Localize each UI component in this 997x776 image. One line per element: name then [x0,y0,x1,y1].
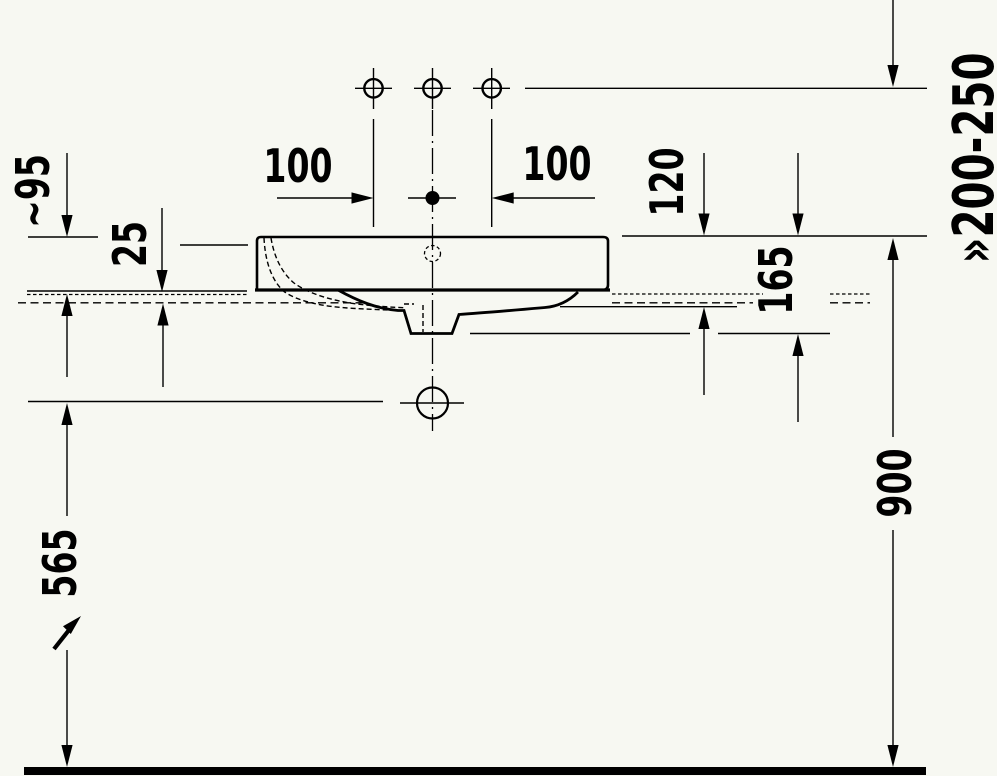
technical-drawing-canvas: 100 100 120 165 ~95 25 565 900 »200-250 [0,0,997,776]
dimension-labels: 100 100 120 165 ~95 25 565 900 »200-250 [8,52,997,597]
washbasin-hidden-lines [264,238,423,332]
label-200-250: »200-250 [941,52,997,263]
label-120: 120 [642,147,695,216]
dimension-arrowheads [61,65,898,767]
washbasin-dimension-drawing: 100 100 120 165 ~95 25 565 900 »200-250 [0,0,997,776]
floor-reference-arrow-icon [54,616,81,649]
label-565: 565 [35,528,88,597]
label-100-left: 100 [263,141,332,194]
floor-line [24,767,926,775]
label-25: 25 [105,221,158,267]
dimension-lines [67,0,893,746]
label-900: 900 [870,448,923,517]
washbasin-bowl-underside [338,290,578,334]
label-165: 165 [751,245,804,314]
label-tilde-95: ~95 [8,154,61,228]
tap-hole-crosshairs [355,68,510,109]
label-100-right: 100 [522,139,591,192]
tap-center-dot-icon [426,191,440,205]
tap-hole-circles [355,68,510,109]
